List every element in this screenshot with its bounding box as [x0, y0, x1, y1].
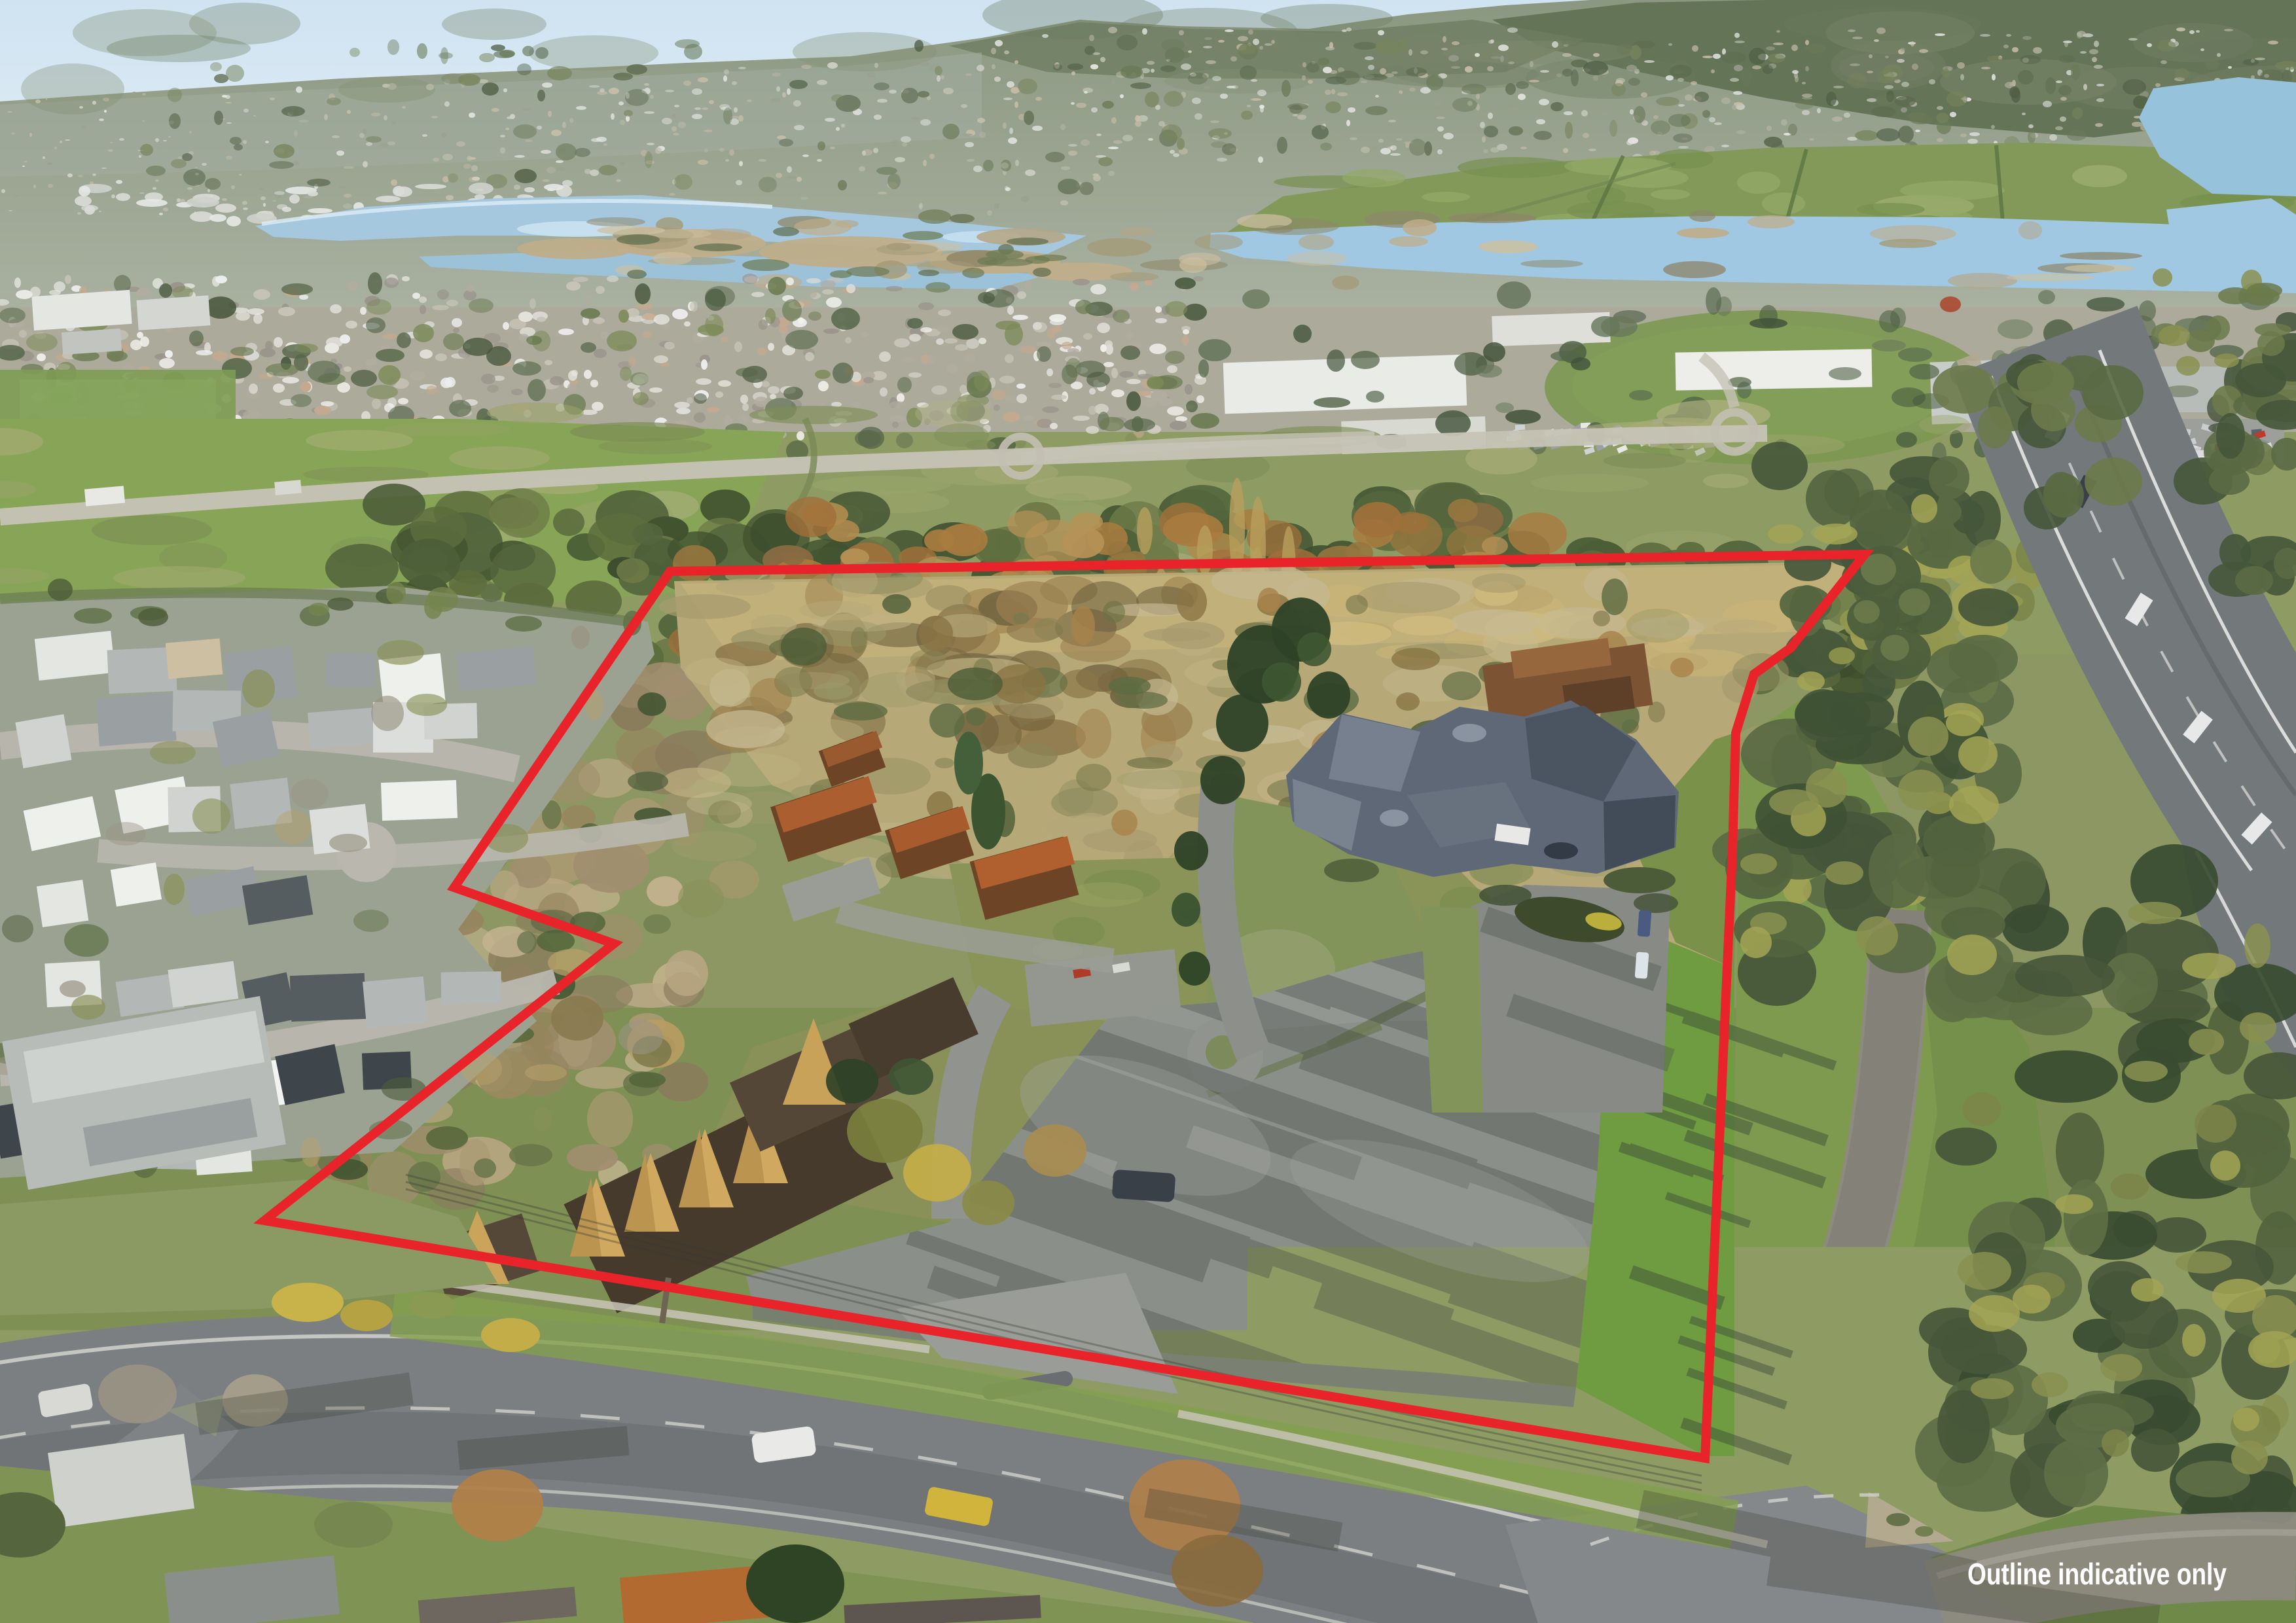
svg-text:Outline indicative only: Outline indicative only [1967, 1557, 2227, 1591]
